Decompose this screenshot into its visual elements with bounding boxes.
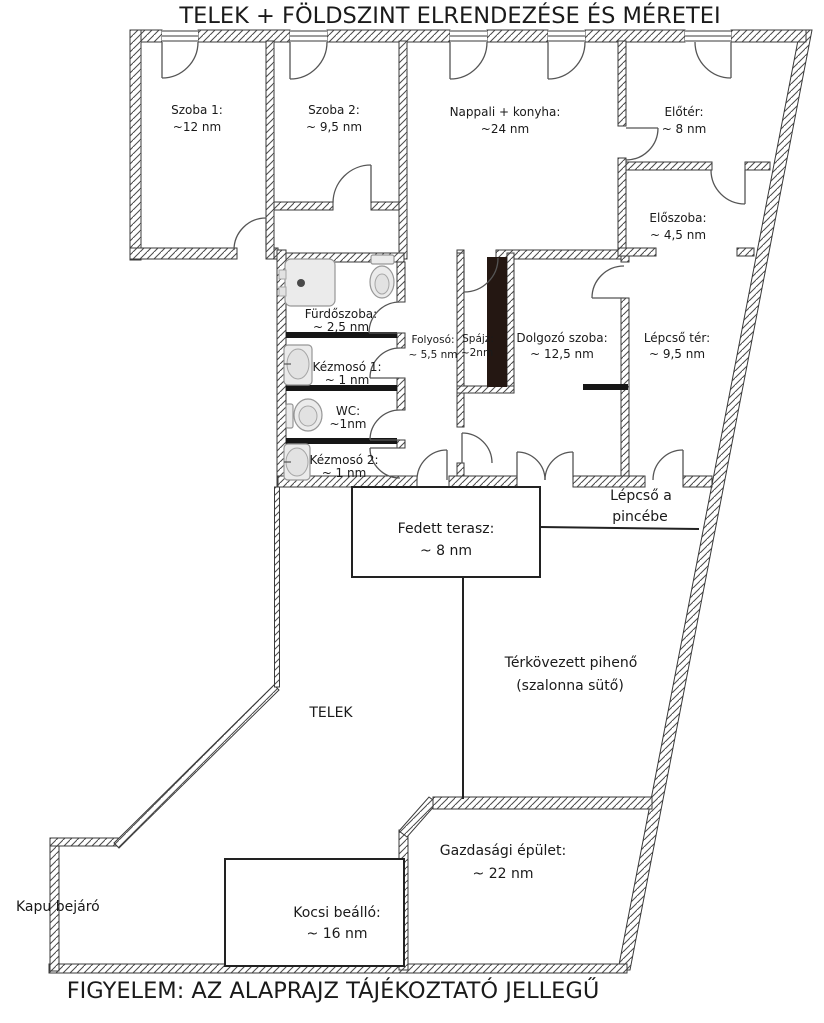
room-label-kezmoso1-area: ~ 1 nm [325, 373, 370, 387]
toilet-icon-2 [286, 399, 322, 431]
room-label-spajz-area: ~2nm [461, 347, 493, 359]
window-swing-nappali-1 [450, 42, 487, 79]
room-label-wc-name: WC: [336, 404, 360, 418]
door-szoba1 [234, 218, 266, 250]
window-nappali-2 [548, 30, 585, 42]
wall-segment [198, 30, 290, 42]
wall-segment [745, 162, 770, 170]
wall-spajz-left [457, 253, 464, 393]
room-label-nappali-area: ~24 nm [481, 122, 529, 136]
room-label-furdoszoba-name: Fürdőszoba: [305, 307, 377, 321]
room-label-lepcso-ter-name: Lépcső tér: [644, 331, 710, 345]
wall-wc-kezmoso2 [286, 438, 397, 444]
room-label-eloszoba-area: ~ 4,5 nm [650, 228, 706, 242]
wall-segment [683, 476, 712, 487]
plot-boundary-gate-top [50, 838, 118, 846]
wall-divider-szoba2-nappali [399, 41, 407, 259]
window-szoba2 [290, 30, 327, 42]
room-label-eloter-name: Előtér: [664, 105, 703, 119]
label-lepcso-pince-line1: Lépcső a [610, 488, 672, 504]
wall-segment [496, 250, 628, 259]
window-swing-szoba2 [290, 42, 327, 79]
wall-stub [583, 384, 628, 390]
wall-eloszoba-left [618, 158, 626, 256]
room-label-folyoso-area: ~ 5,5 nm [408, 349, 457, 361]
wall-segment [130, 248, 237, 259]
wall-gazdasagi-chamfer [399, 797, 437, 837]
door-dolgozo [592, 266, 624, 298]
window-swing-szoba1 [162, 42, 198, 78]
wall-segment [487, 30, 548, 42]
wall-segment [618, 248, 656, 256]
label-kapubejaro: Kapu bejáró [16, 899, 100, 915]
room-label-kezmoso2-area: ~ 1 nm [322, 466, 367, 480]
room-label-nappali-name: Nappali + konyha: [450, 105, 561, 119]
room-label-dolgozo-area: ~ 12,5 nm [530, 347, 594, 361]
room-label-wc-area: ~1nm [330, 417, 367, 431]
door-folyoso-terasz [417, 450, 447, 480]
door-wc [370, 410, 400, 440]
room-label-dolgozo-name: Dolgozó szoba: [516, 331, 607, 345]
room-label-kezmoso1-name: Kézmosó 1: [312, 360, 381, 374]
wall-segment [457, 393, 464, 427]
room-label-szoba2-area: ~ 9,5 nm [306, 120, 362, 134]
window-nappali-1 [450, 30, 487, 42]
window-swing-eloter [695, 42, 731, 78]
wall-segment [737, 248, 754, 256]
door-folyoso-dolgozo [462, 433, 492, 463]
room-label-spajz-name: Spájz: [462, 333, 494, 345]
wall-divider-szoba1-szoba2 [266, 41, 274, 259]
label-gazdasagi-name: Gazdasági épület: [440, 843, 566, 859]
label-telek: TELEK [308, 705, 353, 721]
door-eloszoba [711, 170, 745, 204]
double-door-terasz [517, 452, 573, 480]
label-gazdasagi-area: ~ 22 nm [473, 866, 534, 882]
washbasin-icon [284, 345, 312, 385]
washbasin-icon-2 [284, 444, 310, 480]
wall-segment [585, 30, 685, 42]
label-terkovezett-line1: Térkövezett pihenő [504, 655, 638, 671]
wall-segment [397, 333, 405, 348]
wall-segment [621, 256, 629, 262]
room-label-kezmoso2-name: Kézmosó 2: [309, 453, 378, 467]
pince-strip-line [540, 527, 699, 529]
room-label-szoba1-area: ~12 nm [173, 120, 221, 134]
page-footer: FIGYELEM: AZ ALAPRAJZ TÁJÉKOZTATÓ JELLEG… [67, 976, 600, 1004]
plot-boundary-diagonal-fence [114, 685, 279, 848]
room-label-szoba1-name: Szoba 1: [171, 103, 223, 117]
label-kocsi-area: ~ 16 nm [307, 926, 368, 942]
room-label-terasz-name: Fedett terasz: [398, 521, 495, 537]
wall-segment [573, 476, 645, 487]
wall-segment [397, 262, 405, 302]
wall-segment [618, 41, 626, 126]
wall-spajz-bottom [457, 386, 514, 393]
toilet-icon [370, 255, 394, 298]
wall-segment [397, 440, 405, 448]
room-label-eloszoba-name: Előszoba: [649, 211, 706, 225]
wall-segment [731, 30, 806, 42]
wall-gazdasagi-top [433, 797, 652, 809]
page-title: TELEK + FÖLDSZINT ELRENDEZÉSE ÉS MÉRETEI [178, 1, 720, 29]
room-label-folyoso-name: Folyosó: [411, 334, 454, 346]
window-swing-nappali-2 [548, 42, 585, 79]
label-terkovezett-line2: (szalonna sütő) [516, 678, 624, 694]
pantry-strip [487, 257, 507, 387]
wall-segment [397, 378, 405, 410]
wall-segment [274, 202, 333, 210]
floorplan-drawing: TELEK + FÖLDSZINT ELRENDEZÉSE ÉS MÉRETEI… [0, 0, 824, 1023]
shower-tray-icon [279, 259, 335, 306]
wall-segment [626, 162, 712, 170]
wall-segment [449, 476, 517, 487]
door-eloter [626, 128, 658, 160]
label-lepcso-pince-line2: pincébe [612, 509, 667, 525]
door-szoba2 [333, 165, 371, 203]
room-label-szoba2-name: Szoba 2: [308, 103, 360, 117]
room-label-eloter-area: ~ 8 nm [662, 122, 707, 136]
plot-boundary-vertical-fence [275, 487, 280, 687]
floorplan-page: TELEK + FÖLDSZINT ELRENDEZÉSE ÉS MÉRETEI… [0, 0, 824, 1023]
wall-segment [327, 30, 450, 42]
room-label-furdoszoba-area: ~ 2,5 nm [313, 320, 369, 334]
label-kocsi-name: Kocsi beálló: [293, 905, 381, 921]
wall-spajz-right [507, 253, 514, 393]
door-lepcso-ter [653, 450, 683, 480]
window-szoba1 [162, 30, 198, 42]
wall-left-outer [130, 30, 141, 260]
window-eloter [685, 30, 731, 42]
room-label-lepcso-ter-area: ~ 9,5 nm [649, 347, 705, 361]
room-label-terasz-area: ~ 8 nm [420, 543, 472, 559]
